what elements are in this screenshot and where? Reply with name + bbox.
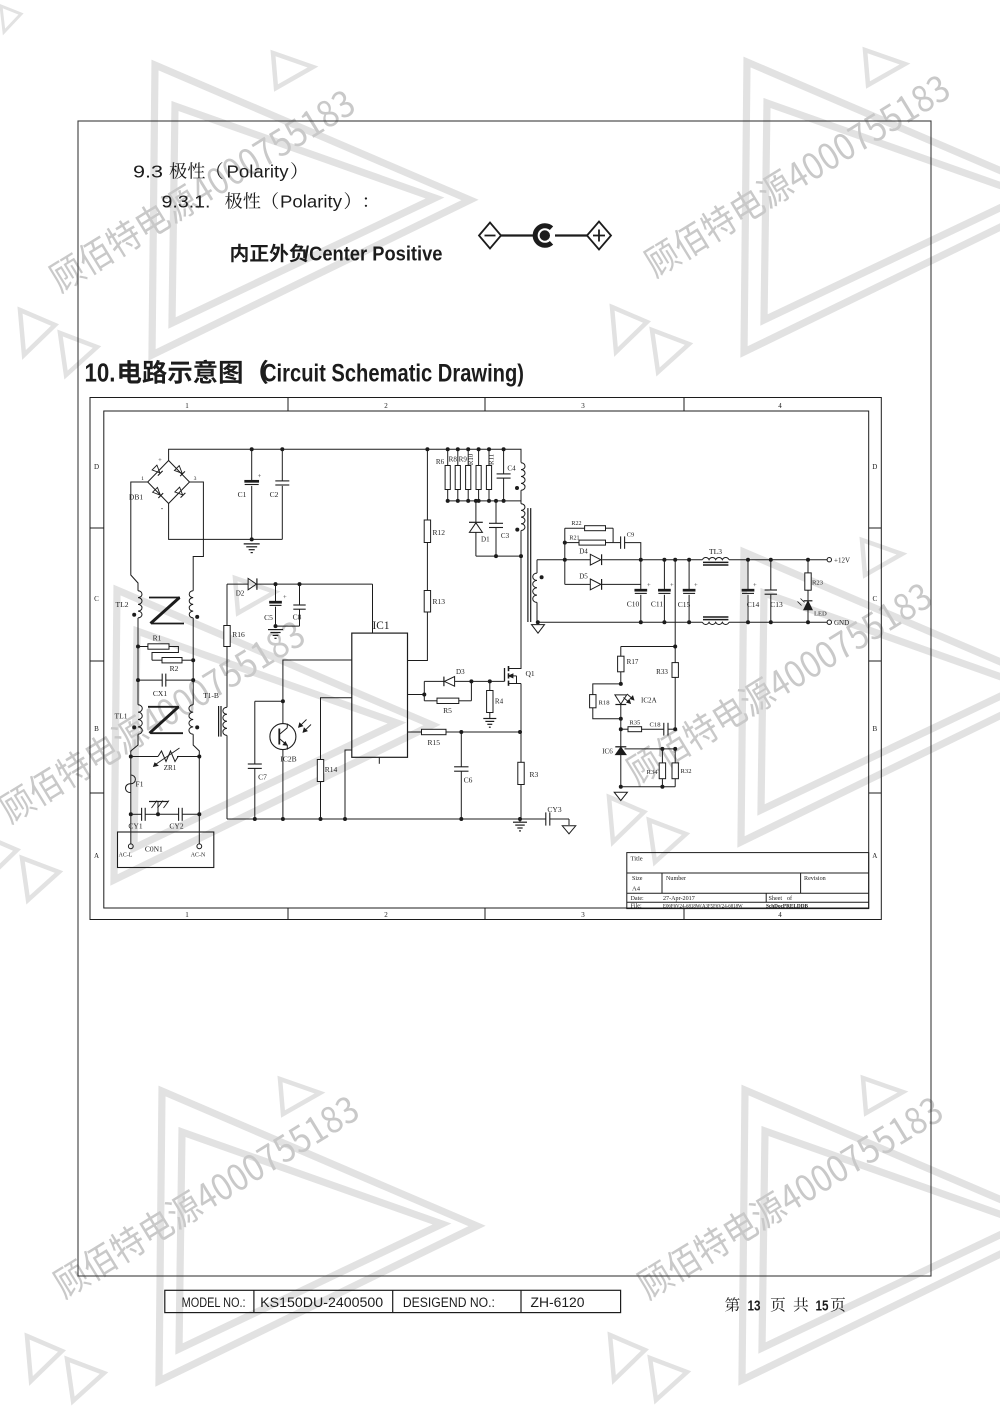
svg-text:C7: C7 [258, 773, 267, 782]
svg-text:1: 1 [185, 911, 189, 919]
svg-text:D: D [872, 463, 877, 471]
svg-text:C13: C13 [770, 600, 783, 609]
svg-text:3: 3 [581, 911, 585, 919]
svg-text:DESIGEND NO.:: DESIGEND NO.: [403, 1295, 495, 1310]
svg-text:R22: R22 [571, 521, 581, 527]
svg-text:+: + [753, 582, 757, 589]
svg-text:D5: D5 [579, 573, 588, 581]
svg-text:R18: R18 [599, 700, 611, 707]
svg-text:Sheet: Sheet [769, 896, 783, 902]
svg-text:Number: Number [666, 876, 686, 882]
svg-text:3: 3 [581, 402, 585, 410]
svg-text:C1: C1 [238, 490, 247, 499]
svg-text:IC6: IC6 [602, 748, 613, 756]
svg-text:F1: F1 [136, 780, 144, 789]
svg-text:Revision: Revision [804, 876, 826, 882]
svg-text:+: + [283, 594, 287, 601]
svg-text:+: + [647, 582, 651, 589]
svg-text:R1: R1 [153, 634, 162, 643]
svg-text:CX1: CX1 [153, 689, 167, 698]
svg-text:E06F6V24-6818W(A3F5F6V24-6818W: E06F6V24-6818W(A3F5F6V24-6818W [663, 905, 743, 910]
svg-text:R33: R33 [656, 668, 668, 676]
svg-text:CY3: CY3 [547, 805, 561, 814]
svg-text:KS150DU-2400500: KS150DU-2400500 [260, 1295, 383, 1310]
svg-text:D: D [94, 463, 99, 471]
svg-text:ZR1: ZR1 [164, 764, 177, 772]
svg-text:C9: C9 [627, 532, 635, 539]
svg-text:C: C [94, 595, 99, 603]
svg-text:Date:: Date: [631, 896, 645, 902]
svg-text:ZH-6120: ZH-6120 [531, 1295, 585, 1310]
svg-text:D1: D1 [481, 536, 490, 544]
svg-text:A: A [872, 852, 878, 860]
svg-text:10.: 10. [85, 358, 116, 388]
svg-text:9.3.1.: 9.3.1. [162, 192, 211, 212]
svg-text:+: + [158, 457, 162, 464]
svg-text:SchDocPRELDDB: SchDocPRELDDB [766, 904, 809, 910]
svg-text:+: + [670, 582, 674, 589]
svg-text:R32: R32 [681, 768, 692, 775]
svg-text:C4: C4 [507, 465, 516, 473]
svg-text:C5: C5 [264, 613, 273, 622]
svg-text:R4: R4 [495, 698, 504, 706]
svg-text:C14: C14 [747, 600, 760, 609]
svg-text:IC2B: IC2B [280, 755, 296, 764]
svg-text:Polarity: Polarity [227, 162, 289, 182]
svg-text:C: C [872, 595, 877, 603]
svg-text:R15: R15 [428, 738, 441, 747]
svg-text:1: 1 [141, 476, 144, 482]
svg-text:MODEL NO.:: MODEL NO.: [182, 1295, 246, 1310]
svg-text:R13: R13 [433, 597, 446, 606]
svg-text:R2: R2 [170, 664, 179, 673]
svg-text:File:: File: [631, 904, 643, 910]
svg-text:R34: R34 [647, 769, 659, 776]
svg-text:Polarity: Polarity [280, 192, 342, 212]
svg-text:R3: R3 [530, 770, 539, 779]
svg-text:CY2: CY2 [169, 822, 183, 831]
svg-text:2: 2 [384, 402, 388, 410]
svg-text:C15: C15 [678, 600, 691, 609]
svg-text:AC-N: AC-N [191, 853, 206, 859]
svg-text:Q1: Q1 [526, 669, 535, 678]
svg-text:R14: R14 [325, 765, 338, 774]
svg-text:IC1: IC1 [373, 620, 390, 632]
svg-text:C10: C10 [627, 600, 640, 609]
svg-text:B: B [94, 725, 99, 733]
svg-text:R16: R16 [232, 630, 245, 639]
svg-text:TL3: TL3 [709, 547, 722, 556]
svg-text:D4: D4 [579, 548, 588, 556]
svg-text:R21: R21 [569, 536, 579, 542]
svg-text:C11: C11 [651, 600, 663, 609]
svg-text:2: 2 [384, 911, 388, 919]
svg-text:13: 13 [748, 1298, 761, 1315]
svg-text:/Center Positive: /Center Positive [304, 244, 443, 266]
svg-text:4: 4 [778, 402, 782, 410]
svg-text:T1-B: T1-B [203, 691, 219, 700]
svg-text:3: 3 [194, 476, 197, 482]
svg-text:AC-L: AC-L [119, 853, 133, 859]
svg-text:+: + [258, 473, 262, 480]
svg-text:R35: R35 [629, 720, 641, 727]
svg-text:R23: R23 [812, 580, 824, 587]
svg-text:+12V: +12V [834, 557, 850, 565]
svg-text:Title: Title [631, 856, 643, 863]
svg-text:R11: R11 [488, 454, 495, 465]
svg-text:C18: C18 [650, 722, 662, 729]
svg-text:Size: Size [632, 876, 643, 882]
svg-text:IC2A: IC2A [641, 697, 658, 705]
svg-text:R5: R5 [443, 706, 452, 715]
svg-text:+: + [694, 582, 698, 589]
svg-text:R6: R6 [436, 458, 445, 466]
svg-text:1: 1 [185, 402, 189, 410]
svg-text:C6: C6 [464, 776, 473, 785]
svg-text:LED: LED [814, 611, 827, 618]
svg-text:R10: R10 [468, 453, 475, 465]
svg-text:GND: GND [834, 619, 849, 627]
svg-text:D3: D3 [456, 668, 465, 676]
svg-text:A4: A4 [632, 886, 641, 893]
svg-text:15: 15 [816, 1298, 829, 1315]
svg-text:R17: R17 [627, 658, 639, 666]
svg-text:4: 4 [778, 911, 782, 919]
svg-text:9.3: 9.3 [133, 162, 163, 182]
svg-text:C3: C3 [501, 532, 510, 540]
svg-text:27-Apr-2017: 27-Apr-2017 [663, 896, 695, 902]
svg-text:Circuit Schematic Drawing): Circuit Schematic Drawing) [262, 360, 524, 388]
svg-text:C2: C2 [270, 490, 279, 499]
svg-text:D2: D2 [236, 590, 245, 598]
svg-text:C0N1: C0N1 [145, 845, 163, 854]
svg-text:R9: R9 [459, 456, 468, 464]
svg-text:TL2: TL2 [116, 600, 129, 609]
svg-text:B: B [872, 725, 877, 733]
svg-text:C8: C8 [293, 613, 302, 622]
svg-text:R12: R12 [433, 528, 446, 537]
svg-text:TL1: TL1 [115, 712, 128, 721]
svg-text:R8: R8 [449, 456, 458, 464]
